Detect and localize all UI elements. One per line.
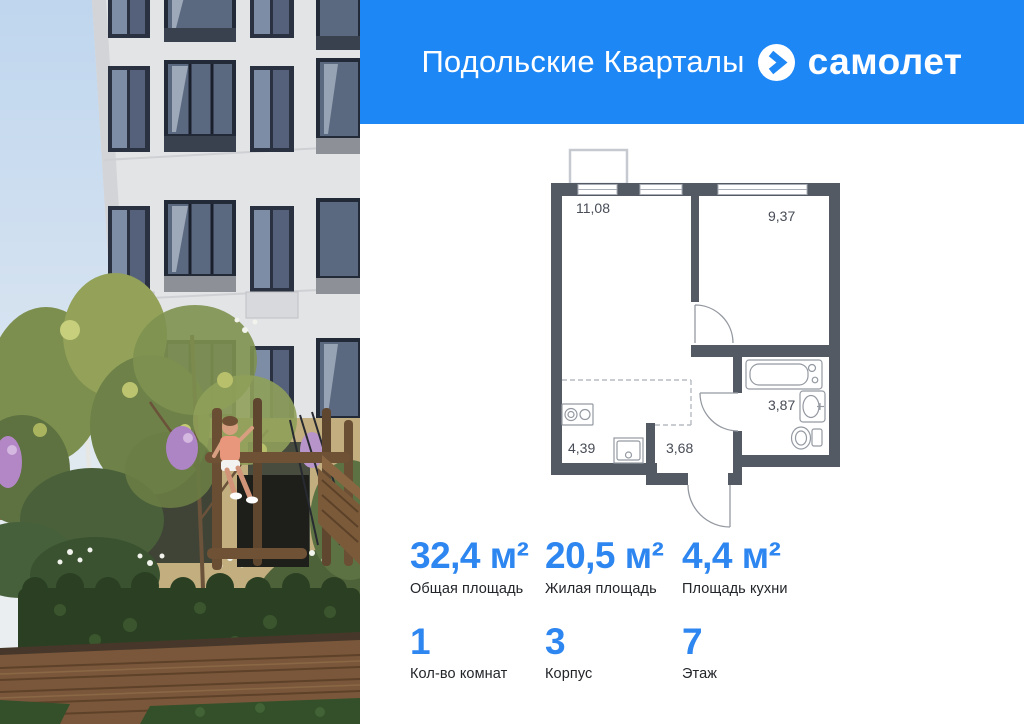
room-label-living: 11,08 (576, 200, 610, 216)
brand-header: Подольские Кварталы самолет (360, 0, 1024, 124)
balcony-outline (570, 150, 627, 184)
room-label-kitchen: 4,39 (568, 440, 595, 456)
photo-illustration (0, 0, 360, 724)
bathroom-sink-icon (800, 391, 825, 422)
stat-label: Этаж (682, 666, 852, 682)
stat-label: Кол-во комнат (410, 666, 545, 682)
walkway (0, 632, 360, 724)
stat-floor: 7 Этаж (682, 621, 852, 683)
toilet-icon (792, 427, 823, 449)
stat-label: Площадь кухни (682, 581, 852, 597)
stat-value: 4,4 м² (682, 535, 852, 578)
room-label-bathroom: 3,87 (768, 397, 795, 413)
stat-kitchen-area: 4,4 м² Площадь кухни (682, 535, 852, 597)
stat-value: 32,4 м² (410, 535, 545, 578)
stat-value: 7 (682, 621, 852, 664)
stat-value: 20,5 м² (545, 535, 682, 578)
samolet-logo-icon (758, 44, 795, 81)
bathtub-icon (746, 360, 822, 389)
stat-label: Жилая площадь (545, 581, 682, 597)
stove-icon (562, 404, 593, 425)
stat-living-area: 20,5 м² Жилая площадь (545, 535, 682, 597)
floor-plan: 11,08 9,37 4,39 3,68 3,87 (546, 143, 846, 543)
listing-card: Подольские Кварталы самолет (360, 0, 1024, 724)
stat-label: Общая площадь (410, 581, 545, 597)
room-label-hall: 3,68 (666, 440, 693, 456)
stat-building: 3 Корпус (545, 621, 682, 683)
stat-value: 1 (410, 621, 545, 664)
apartment-stats: 32,4 м² Общая площадь 20,5 м² Жилая площ… (410, 535, 852, 682)
door-arcs (688, 305, 738, 527)
project-title: Подольские Кварталы (421, 44, 744, 80)
stat-total-area: 32,4 м² Общая площадь (410, 535, 545, 597)
brand-name: самолет (808, 41, 963, 83)
stat-label: Корпус (545, 666, 682, 682)
room-label-bedroom: 9,37 (768, 208, 795, 224)
stat-value: 3 (545, 621, 682, 664)
floor-plan-svg: 11,08 9,37 4,39 3,68 3,87 (546, 143, 846, 543)
stat-rooms: 1 Кол-во комнат (410, 621, 545, 683)
courtyard-photo (0, 0, 360, 724)
kitchen-sink-icon (614, 438, 643, 463)
